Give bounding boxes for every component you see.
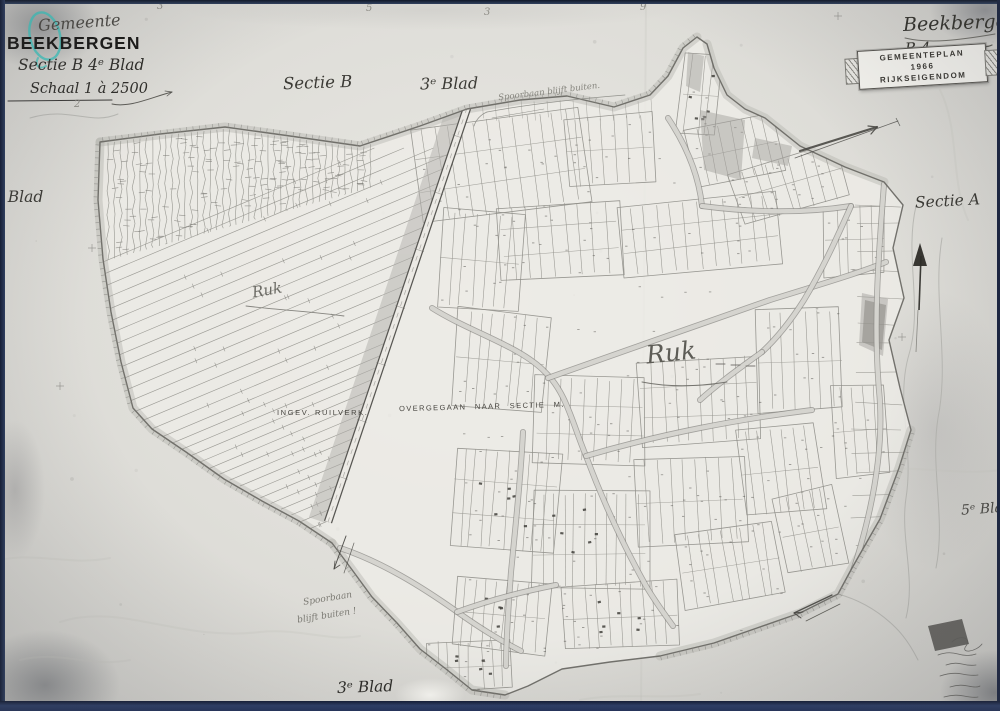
gemeenteplan-stamp: GEMEENTEPLAN 1966 RIJKSEIGENDOM xyxy=(844,42,1000,90)
label-sectie-b: Sectie B xyxy=(283,72,353,93)
cadastral-map-sheet: Gemeente BEEKBERGEN Sectie B 4ᵉ Blad Sch… xyxy=(0,0,1000,711)
title-gemeente: Gemeente xyxy=(37,10,121,35)
annotation-overgegaan-sectie-m: OVERGEGAAN NAAR SECTIE M. xyxy=(399,400,565,413)
annotation-spoorbaan-top: Spoorbaan blijft buiten. xyxy=(498,81,601,103)
paper-stain xyxy=(930,0,1000,45)
edge-number: 5 xyxy=(366,3,372,14)
photo-border-left xyxy=(0,0,5,711)
stamp-box: GEMEENTEPLAN 1966 RIJKSEIGENDOM xyxy=(857,43,988,90)
paper-stain xyxy=(940,650,1000,711)
stamp-line1: GEMEENTEPLAN 1966 xyxy=(866,47,978,76)
edge-number: 9 xyxy=(640,2,646,13)
paper-stain xyxy=(855,290,1000,570)
annotation-spoorbaan-bottom-1: Spoorbaan xyxy=(303,590,353,608)
surveyor-signature xyxy=(928,619,982,697)
annotation-ruk-small: Ruk xyxy=(251,279,284,302)
edge-number: 2 xyxy=(74,99,80,110)
photo-border-top xyxy=(0,0,1000,4)
annotation-ruk-large: Ruk xyxy=(645,335,698,369)
edge-number: 3 xyxy=(484,7,490,18)
label-blad-top: 3ᵉ Blad xyxy=(420,73,478,93)
label-sectie-a: Sectie A xyxy=(915,190,981,211)
map-line-art xyxy=(0,0,1000,711)
vignette xyxy=(0,0,1000,711)
paper-stain xyxy=(0,0,100,70)
corner-script-sheet: B 4. xyxy=(905,38,936,57)
stamp-tab-right xyxy=(984,49,1000,76)
title-sectie-blad: Sectie B 4ᵉ Blad xyxy=(18,56,144,74)
label-blad-bottom: 3ᵉ Blad xyxy=(337,677,394,697)
edge-number: 3 xyxy=(157,1,163,12)
title-municipality: BEEKBERGEN xyxy=(7,33,141,54)
corner-script-name: Beekbergen xyxy=(903,10,1000,36)
photo-border-bottom xyxy=(0,701,1000,711)
paper-stain xyxy=(0,420,45,560)
stamp-line2: RIJKSEIGENDOM xyxy=(867,69,979,87)
annotation-spoorbaan-bottom-2: blijft buiten ! xyxy=(297,606,358,625)
annotation-ingev-ruilverk: INGEV. RUILVERK. xyxy=(277,408,368,417)
paper-stain xyxy=(180,0,680,30)
stamp-tab-left xyxy=(844,57,860,84)
label-blad-left: 5ᵉ Blad xyxy=(0,188,43,206)
title-schaal: Schaal 1 à 2500 xyxy=(30,81,148,97)
label-blad-right: 5ᵉ Blad xyxy=(961,499,1000,519)
paper-stain xyxy=(0,630,120,711)
paper-highlight xyxy=(395,678,465,711)
